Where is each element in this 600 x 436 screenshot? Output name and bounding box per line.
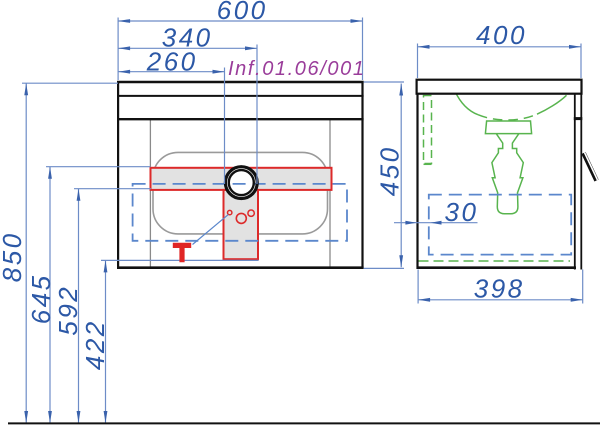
svg-text:398: 398: [474, 274, 525, 304]
svg-text:600: 600: [217, 0, 268, 25]
svg-text:450: 450: [375, 145, 405, 196]
svg-text:422: 422: [80, 319, 110, 370]
svg-text:645: 645: [26, 273, 56, 324]
svg-text:400: 400: [476, 20, 527, 50]
svg-text:592: 592: [53, 285, 83, 336]
svg-text:Inf.01.06/001: Inf.01.06/001: [228, 58, 366, 80]
svg-text:260: 260: [146, 47, 198, 77]
svg-text:850: 850: [0, 231, 27, 282]
svg-text:30: 30: [445, 197, 479, 227]
